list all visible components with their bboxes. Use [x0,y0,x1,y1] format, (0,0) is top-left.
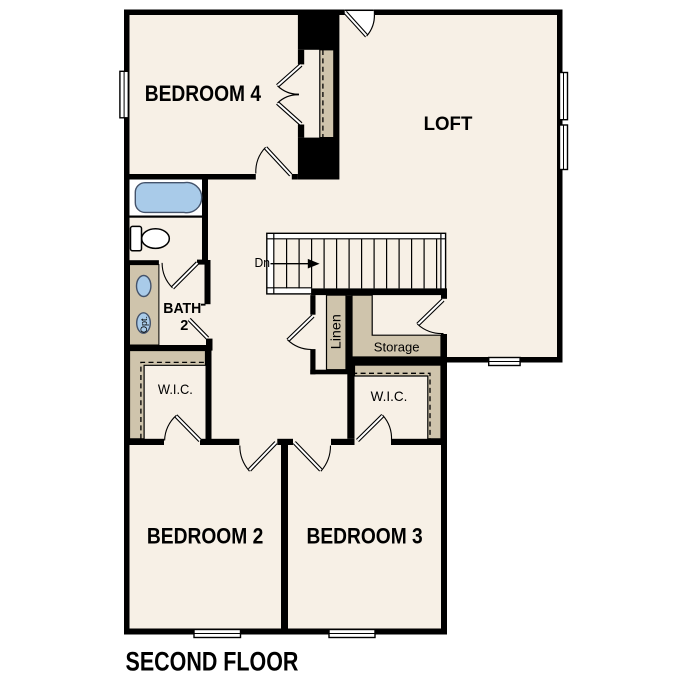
svg-text:W.I.C.: W.I.C. [371,388,408,404]
svg-text:2: 2 [180,318,188,334]
svg-text:BEDROOM 2: BEDROOM 2 [147,524,263,549]
svg-text:W.I.C.: W.I.C. [158,381,193,397]
svg-text:BEDROOM 3: BEDROOM 3 [307,524,423,549]
svg-text:Opt.: Opt. [139,316,149,333]
svg-text:Dn: Dn [255,255,271,270]
svg-text:Storage: Storage [374,340,420,355]
svg-text:BEDROOM 4: BEDROOM 4 [145,81,262,106]
svg-text:BATH: BATH [163,301,201,317]
svg-text:Linen: Linen [329,314,344,349]
svg-text:SECOND FLOOR: SECOND FLOOR [126,647,299,677]
svg-text:LOFT: LOFT [424,113,473,135]
